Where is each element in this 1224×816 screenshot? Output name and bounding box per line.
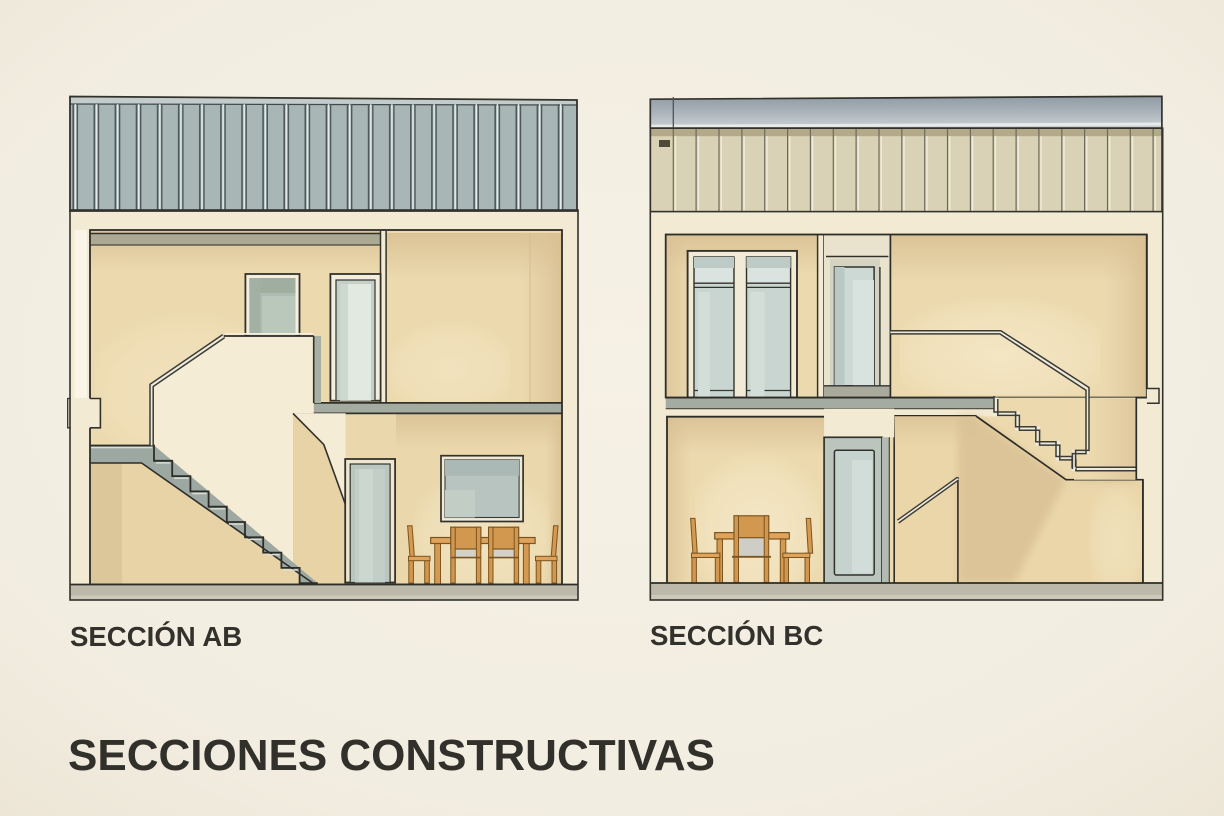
svg-text:SECCIÓN BC: SECCIÓN BC (650, 620, 823, 651)
svg-text:SECCIÓN AB: SECCIÓN AB (70, 621, 242, 652)
svg-text:SECCIONES CONSTRUCTIVAS: SECCIONES CONSTRUCTIVAS (68, 731, 715, 780)
